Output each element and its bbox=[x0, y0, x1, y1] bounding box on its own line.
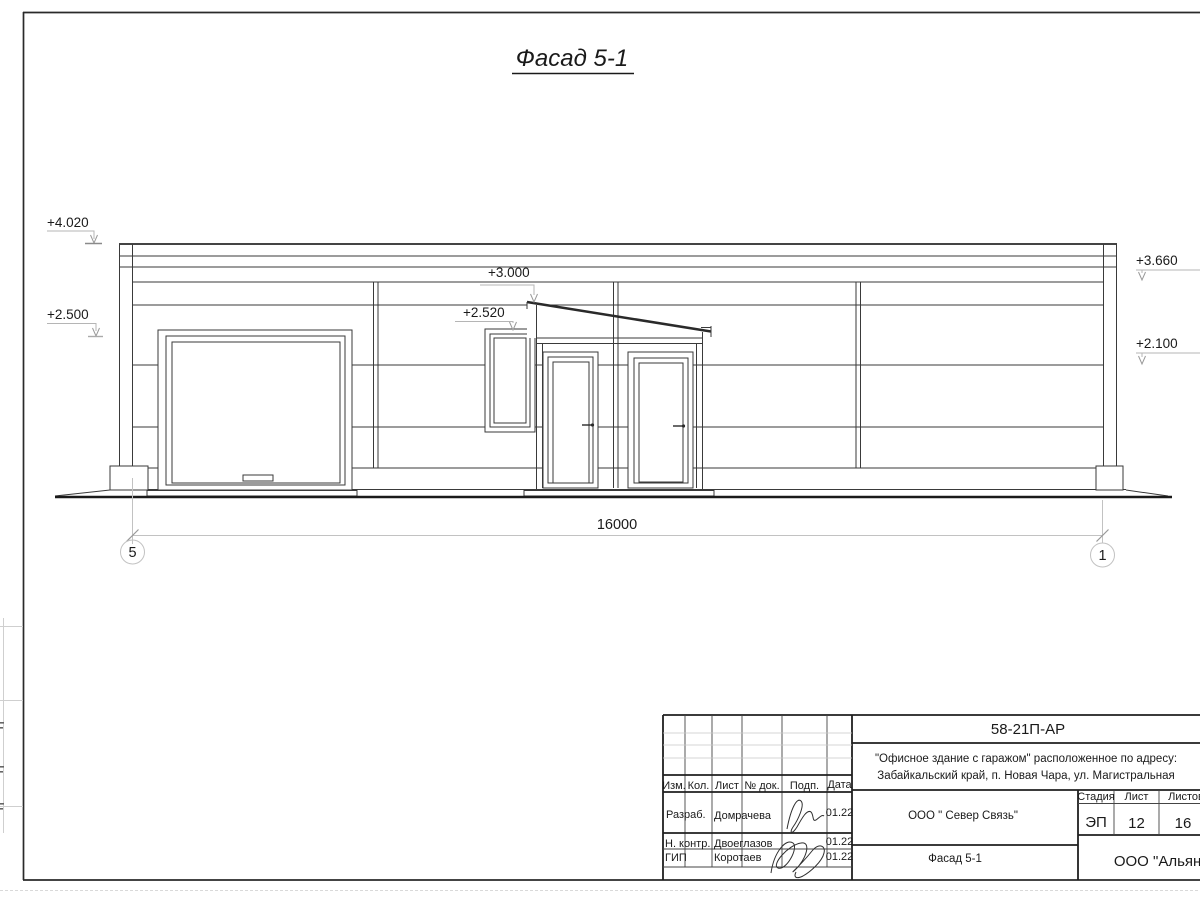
elevation-mark-4020: +4.020 bbox=[47, 215, 102, 244]
sheet-name: Фасад 5-1 bbox=[928, 853, 982, 865]
axis-label-5: 5 bbox=[128, 545, 136, 561]
elevation-mark-2100: +2.100 bbox=[1136, 336, 1200, 364]
elevation-mark-3660: +3.660 bbox=[1136, 253, 1200, 280]
doc-number: 58-21П-АР bbox=[991, 721, 1065, 738]
sheet-number: 12 bbox=[1128, 815, 1145, 832]
stamp-header-row: Изм. Кол. Лист № док. Подп. Дата bbox=[662, 779, 852, 792]
garage-door-handle bbox=[243, 475, 273, 481]
wall-panel-joints bbox=[374, 282, 861, 468]
entrance-apron bbox=[524, 491, 714, 497]
col-izm: Изм. bbox=[662, 780, 686, 792]
signatures bbox=[771, 800, 824, 877]
garage-apron bbox=[147, 491, 357, 497]
role-date: 01.22 bbox=[826, 807, 854, 819]
drawing-sheet: Фасад 5-1 bbox=[0, 0, 1200, 900]
signature-gip bbox=[771, 842, 824, 878]
elevation-value: +2.520 bbox=[463, 305, 505, 320]
page-title: Фасад 5-1 bbox=[516, 45, 628, 72]
list-label: Лист bbox=[1125, 791, 1149, 803]
pilaster-right bbox=[1096, 244, 1123, 490]
window bbox=[485, 329, 535, 432]
role-label: Н. контр. bbox=[665, 838, 710, 850]
elevation-value: +4.020 bbox=[47, 215, 89, 230]
stage-value: ЭП bbox=[1085, 814, 1107, 831]
role-name: Домрачева bbox=[714, 810, 772, 822]
project-address-line1: "Офисное здание с гаражом" расположенное… bbox=[875, 753, 1177, 765]
col-sign: Подп. bbox=[790, 780, 819, 792]
col-doc: № док. bbox=[744, 780, 779, 792]
stamp-role-rows: Разраб. Домрачева 01.22 Н. контр. Двоегл… bbox=[665, 807, 853, 864]
stage-label: Стадия bbox=[1077, 791, 1115, 803]
elevation-value: +2.500 bbox=[47, 307, 89, 322]
role-label: ГИП bbox=[665, 852, 687, 864]
elevation-value: +3.660 bbox=[1136, 253, 1178, 268]
left-bleed-fragment bbox=[0, 618, 23, 833]
project-address-line2: Забайкальский край, п. Новая Чара, ул. М… bbox=[877, 770, 1175, 782]
organization-name: ООО "Альянс" bbox=[1114, 853, 1200, 870]
col-list: Лист bbox=[715, 780, 739, 792]
role-date: 01.22 bbox=[826, 851, 854, 863]
elevation-mark-2520: +2.520 bbox=[455, 305, 517, 330]
role-date: 01.22 bbox=[826, 836, 854, 848]
col-date: Дата bbox=[827, 779, 852, 791]
elevation-mark-2500: +2.500 bbox=[47, 307, 103, 337]
sheet-title: Фасад 5-1 bbox=[512, 45, 634, 74]
pilaster-left bbox=[110, 244, 148, 490]
signature-razrab bbox=[787, 800, 824, 832]
role-name: Коротаев bbox=[714, 852, 762, 864]
elevation-value: +2.100 bbox=[1136, 336, 1178, 351]
col-kol: Кол. bbox=[688, 780, 710, 792]
facade-drawing-svg: Фасад 5-1 bbox=[0, 0, 1200, 900]
elevation-value: +3.000 bbox=[488, 265, 530, 280]
listov-label: Листов bbox=[1168, 791, 1200, 803]
axis-label-1: 1 bbox=[1098, 548, 1106, 564]
role-name: Двоеглазов bbox=[714, 838, 773, 850]
role-label: Разраб. bbox=[666, 809, 706, 821]
entrance-door-left bbox=[543, 352, 598, 488]
entrance-door-right bbox=[628, 352, 693, 488]
dimension-value: 16000 bbox=[597, 517, 637, 533]
title-block: Изм. Кол. Лист № док. Подп. Дата Разраб.… bbox=[662, 715, 1200, 880]
elevation-mark-3000: +3.000 bbox=[480, 265, 538, 302]
contractor-name: ООО " Север Связь" bbox=[908, 810, 1018, 822]
sheet-count: 16 bbox=[1175, 815, 1192, 832]
grid-axes: 5 1 bbox=[121, 540, 1115, 567]
facade-elevation bbox=[55, 244, 1172, 497]
garage-door bbox=[158, 330, 352, 490]
